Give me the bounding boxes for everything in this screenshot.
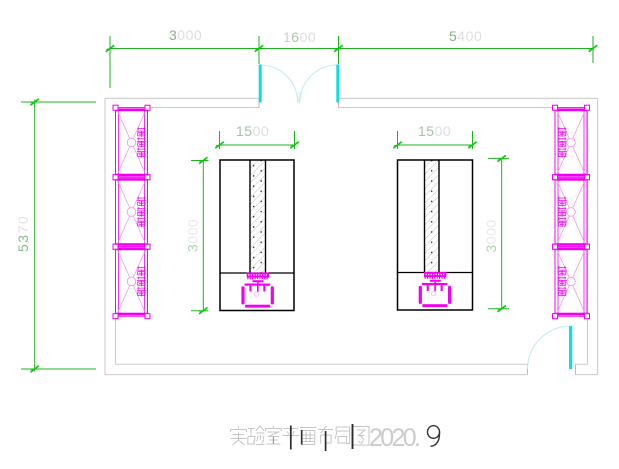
svg-text:5370: 5370 [15, 215, 31, 252]
svg-text:3000: 3000 [483, 219, 499, 252]
svg-text:1500: 1500 [236, 123, 269, 139]
svg-text:2020.: 2020. [369, 424, 421, 452]
svg-text:3000: 3000 [169, 27, 202, 43]
svg-text:5400: 5400 [449, 28, 482, 44]
svg-text:3000: 3000 [185, 219, 201, 252]
svg-text:1500: 1500 [418, 123, 451, 139]
svg-text:1600: 1600 [283, 29, 316, 45]
